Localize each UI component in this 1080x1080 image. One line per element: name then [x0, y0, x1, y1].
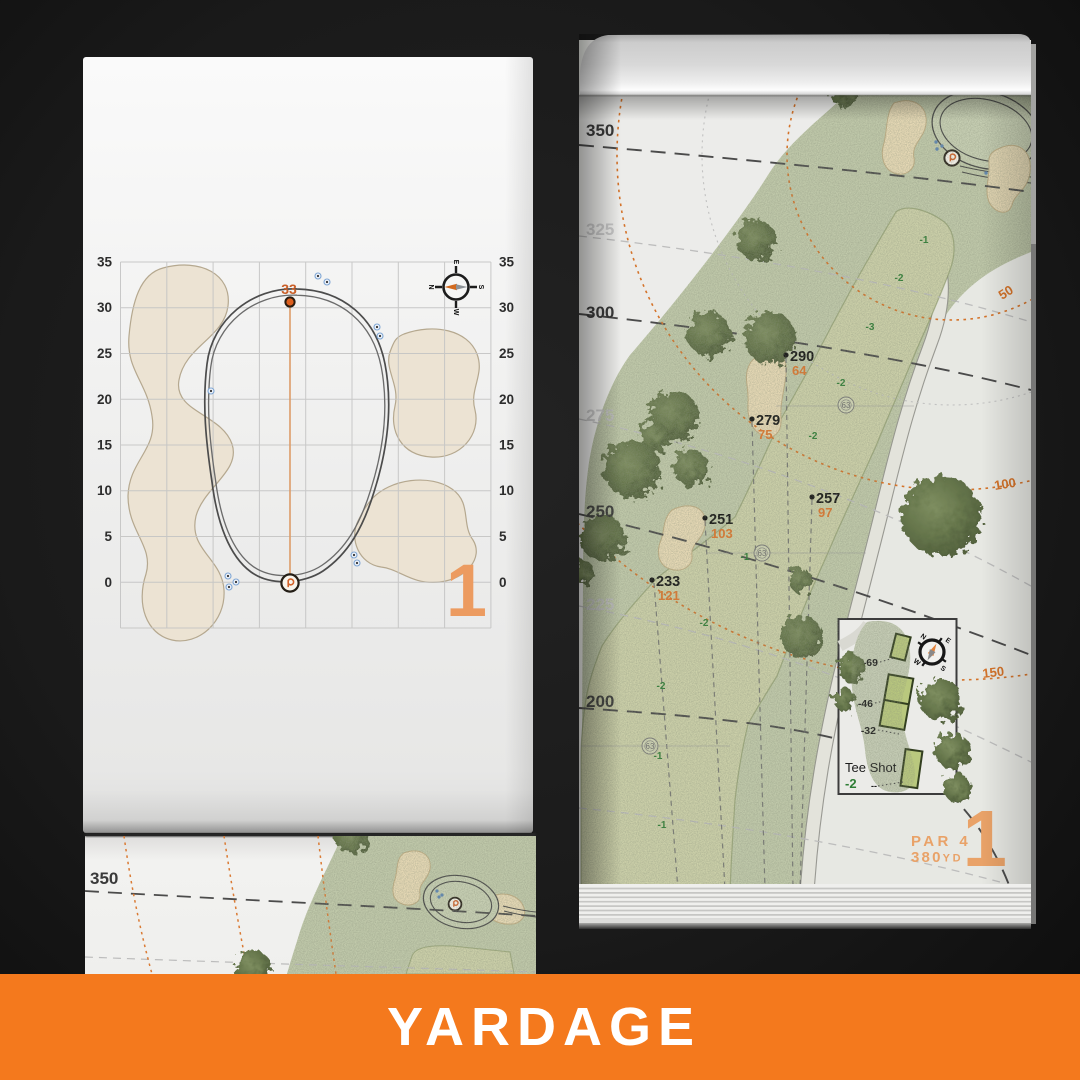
svg-text:10: 10 — [499, 483, 514, 498]
svg-text:20: 20 — [499, 392, 514, 407]
svg-text:35: 35 — [499, 255, 515, 270]
svg-text:W: W — [452, 309, 459, 316]
svg-text:0: 0 — [499, 575, 507, 590]
svg-text:20: 20 — [97, 392, 112, 407]
svg-text:YARDAGE: YARDAGE — [387, 997, 701, 1057]
svg-text:33: 33 — [281, 281, 297, 297]
svg-text:30: 30 — [499, 300, 514, 315]
svg-text:25: 25 — [97, 346, 113, 361]
svg-text:1: 1 — [446, 549, 487, 632]
svg-text:15: 15 — [499, 438, 515, 453]
svg-text:5: 5 — [499, 529, 507, 544]
svg-text:N: N — [427, 284, 434, 289]
svg-text:5: 5 — [104, 529, 112, 544]
svg-text:30: 30 — [97, 300, 112, 315]
svg-text:25: 25 — [499, 346, 515, 361]
svg-text:E: E — [452, 260, 459, 265]
svg-text:S: S — [477, 285, 484, 290]
svg-text:15: 15 — [97, 438, 113, 453]
svg-text:10: 10 — [97, 483, 112, 498]
svg-text:35: 35 — [97, 255, 113, 270]
svg-text:0: 0 — [104, 575, 112, 590]
